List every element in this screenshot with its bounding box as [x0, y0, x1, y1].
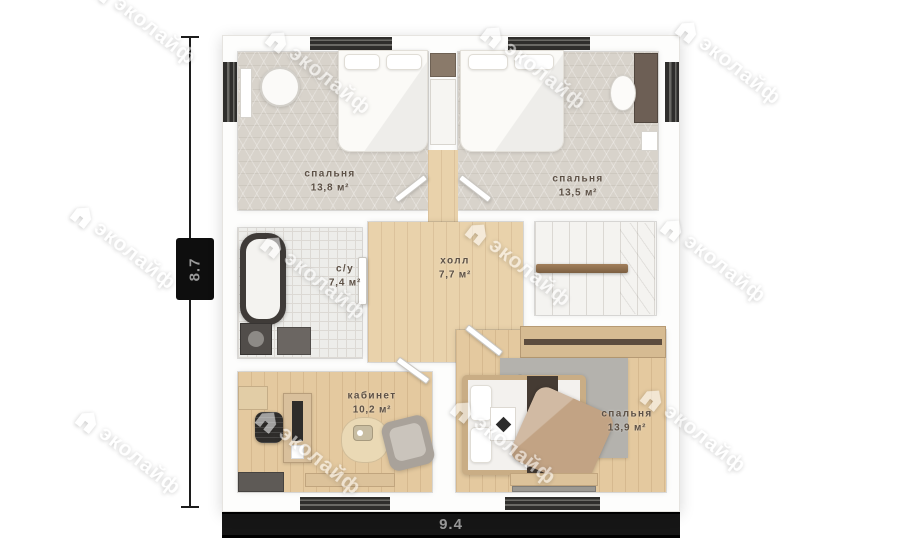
- pillow: [470, 427, 492, 463]
- washing-machine: [240, 323, 272, 355]
- stool: [610, 75, 636, 111]
- shelf: [510, 473, 598, 486]
- room-area: 13,5 м²: [552, 186, 603, 200]
- window: [665, 62, 679, 122]
- double-bed: [460, 50, 564, 152]
- watermark: эколайф: [671, 14, 785, 111]
- room-label-bedroom-top-right: спальня 13,5 м²: [552, 173, 603, 200]
- bathtub-basin: [246, 239, 280, 319]
- cushion-pattern: [496, 417, 512, 433]
- window: [508, 37, 590, 50]
- room-label-hall: холл 7,7 м²: [439, 255, 471, 282]
- room-area: 7,4 м²: [329, 276, 361, 290]
- cabinet: [238, 472, 284, 492]
- house-logo-icon: [71, 404, 105, 438]
- dimension-tick: [181, 36, 199, 38]
- wardrobe: [520, 326, 666, 358]
- room-label-office: кабинет 10,2 м²: [347, 390, 396, 417]
- pillow: [514, 54, 554, 70]
- floor-plan: спальня 13,8 м² спальня 13,5 м² с/у 7,4 …: [222, 35, 680, 512]
- room-label-bedroom-top-left: спальня 13,8 м²: [304, 168, 355, 195]
- window: [300, 497, 390, 510]
- pillow: [468, 54, 508, 70]
- width-dimension-band: 9.4: [222, 511, 680, 538]
- room-name: кабинет: [347, 390, 396, 404]
- floor-plan-page: 8.7 9.4: [0, 0, 900, 550]
- room-name: спальня: [304, 168, 355, 182]
- window: [223, 62, 237, 122]
- pillow: [344, 54, 380, 70]
- room-area: 10,2 м²: [347, 403, 396, 417]
- height-dimension-value: 8.7: [186, 257, 203, 281]
- window: [310, 37, 392, 50]
- winder-steps: [620, 223, 655, 314]
- wardrobe: [430, 53, 456, 77]
- pillow: [470, 385, 492, 421]
- width-dimension-value: 9.4: [439, 516, 463, 533]
- watermark: эколайф: [66, 199, 180, 296]
- house-logo-icon: [86, 0, 120, 7]
- height-dimension-label: 8.7: [176, 238, 214, 300]
- room-name: с/у: [329, 263, 361, 277]
- room-name: спальня: [601, 408, 652, 422]
- room-name: холл: [439, 255, 471, 269]
- laptop: [292, 401, 303, 441]
- room-area: 13,9 м²: [601, 421, 652, 435]
- vanity: [277, 327, 311, 355]
- armchair-seat: [388, 422, 427, 463]
- radiator: [240, 68, 252, 118]
- room-area: 7,7 м²: [439, 268, 471, 282]
- wardrobe-rail: [524, 339, 662, 345]
- corridor-strip: [428, 150, 458, 222]
- patterned-cushion: [490, 407, 516, 441]
- double-bed: [462, 375, 586, 475]
- shelf: [238, 386, 268, 410]
- round-chair: [260, 67, 300, 107]
- pillow: [386, 54, 422, 70]
- nightstand: [641, 131, 658, 151]
- desk: [283, 393, 312, 463]
- bookshelf: [305, 473, 395, 487]
- room-label-bathroom: с/у 7,4 м²: [329, 263, 361, 290]
- house-logo-icon: [66, 199, 100, 233]
- room-name: спальня: [552, 173, 603, 187]
- window: [505, 497, 600, 510]
- bathtub: [240, 233, 286, 325]
- dimension-tick: [181, 506, 199, 508]
- room-label-bedroom-bottom: спальня 13,9 м²: [601, 408, 652, 435]
- cup: [357, 430, 363, 436]
- washer-door: [248, 331, 264, 347]
- office-chair: [255, 412, 283, 443]
- watermark: эколайф: [71, 404, 185, 501]
- double-bed: [338, 50, 428, 152]
- dresser: [634, 53, 658, 123]
- handrail: [536, 264, 628, 273]
- radiator: [512, 486, 596, 492]
- cabinet: [430, 79, 456, 145]
- paper: [291, 445, 304, 459]
- coffee-table: [353, 425, 373, 441]
- room-area: 13,8 м²: [304, 181, 355, 195]
